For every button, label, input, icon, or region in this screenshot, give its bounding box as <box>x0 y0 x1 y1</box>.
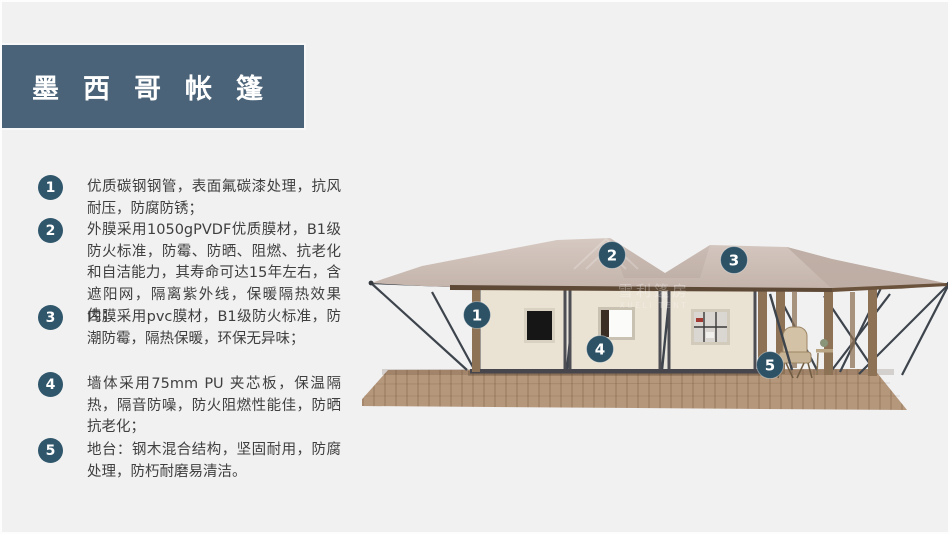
slide: 墨西哥帐篷 1 优质碳钢钢管，表面氟碳漆处理，抗风耐压，防腐防锈； 2 外膜采用… <box>0 0 950 534</box>
callout-3: 3 <box>721 247 748 274</box>
watermark-cn: 雪利篷房 <box>618 282 690 300</box>
callout-1: 1 <box>464 302 491 329</box>
watermark-en: XUELI TENT <box>620 301 689 310</box>
callout-2: 2 <box>599 242 626 269</box>
title-banner: 墨西哥帐篷 <box>2 45 304 128</box>
feature-text: 优质碳钢钢管，表面氟碳漆处理，抗风耐压，防腐防锈； <box>87 175 341 220</box>
feature-number-badge: 5 <box>38 438 63 463</box>
window-open <box>598 307 635 340</box>
window-interior <box>691 309 730 345</box>
svg-text:3: 3 <box>729 251 739 269</box>
feature-text: 地台：钢木混合结构，坚固耐用，防腐处理，防朽耐磨易清洁。 <box>87 438 341 483</box>
callout-4: 4 <box>587 336 614 363</box>
feature-item-3: 3 内膜采用pvc膜材，B1级防火标准，防潮防霉，隔热保暖，环保无异味； <box>38 305 354 350</box>
window-dark <box>524 308 555 343</box>
svg-text:2: 2 <box>607 246 617 264</box>
svg-text:1: 1 <box>472 306 482 324</box>
svg-text:4: 4 <box>595 340 605 358</box>
feature-item-5: 5 地台：钢木混合结构，坚固耐用，防腐处理，防朽耐磨易清洁。 <box>38 438 354 483</box>
feature-text: 内膜采用pvc膜材，B1级防火标准，防潮防霉，隔热保暖，环保无异味； <box>87 305 341 350</box>
side-table <box>816 349 833 353</box>
feature-number-badge: 4 <box>38 372 63 397</box>
page-title: 墨西哥帐篷 <box>2 67 287 106</box>
plant <box>820 339 828 347</box>
feature-number-badge: 3 <box>38 305 63 330</box>
feature-number-badge: 2 <box>38 218 63 243</box>
deck-platform <box>362 369 907 410</box>
feature-text: 墙体采用75mm PU 夹芯板，保温隔热，隔音防噪，防火阻燃性能佳，防晒抗老化； <box>87 372 341 439</box>
feature-number-badge: 1 <box>38 175 63 200</box>
tent-illustration: 雪利篷房 XUELI TENT 1 2 3 4 5 <box>362 212 950 422</box>
callout-5: 5 <box>757 352 784 379</box>
feature-item-1: 1 优质碳钢钢管，表面氟碳漆处理，抗风耐压，防腐防锈； <box>38 175 354 220</box>
svg-text:5: 5 <box>765 356 775 374</box>
feature-item-4: 4 墙体采用75mm PU 夹芯板，保温隔热，隔音防噪，防火阻燃性能佳，防晒抗老… <box>38 372 354 439</box>
